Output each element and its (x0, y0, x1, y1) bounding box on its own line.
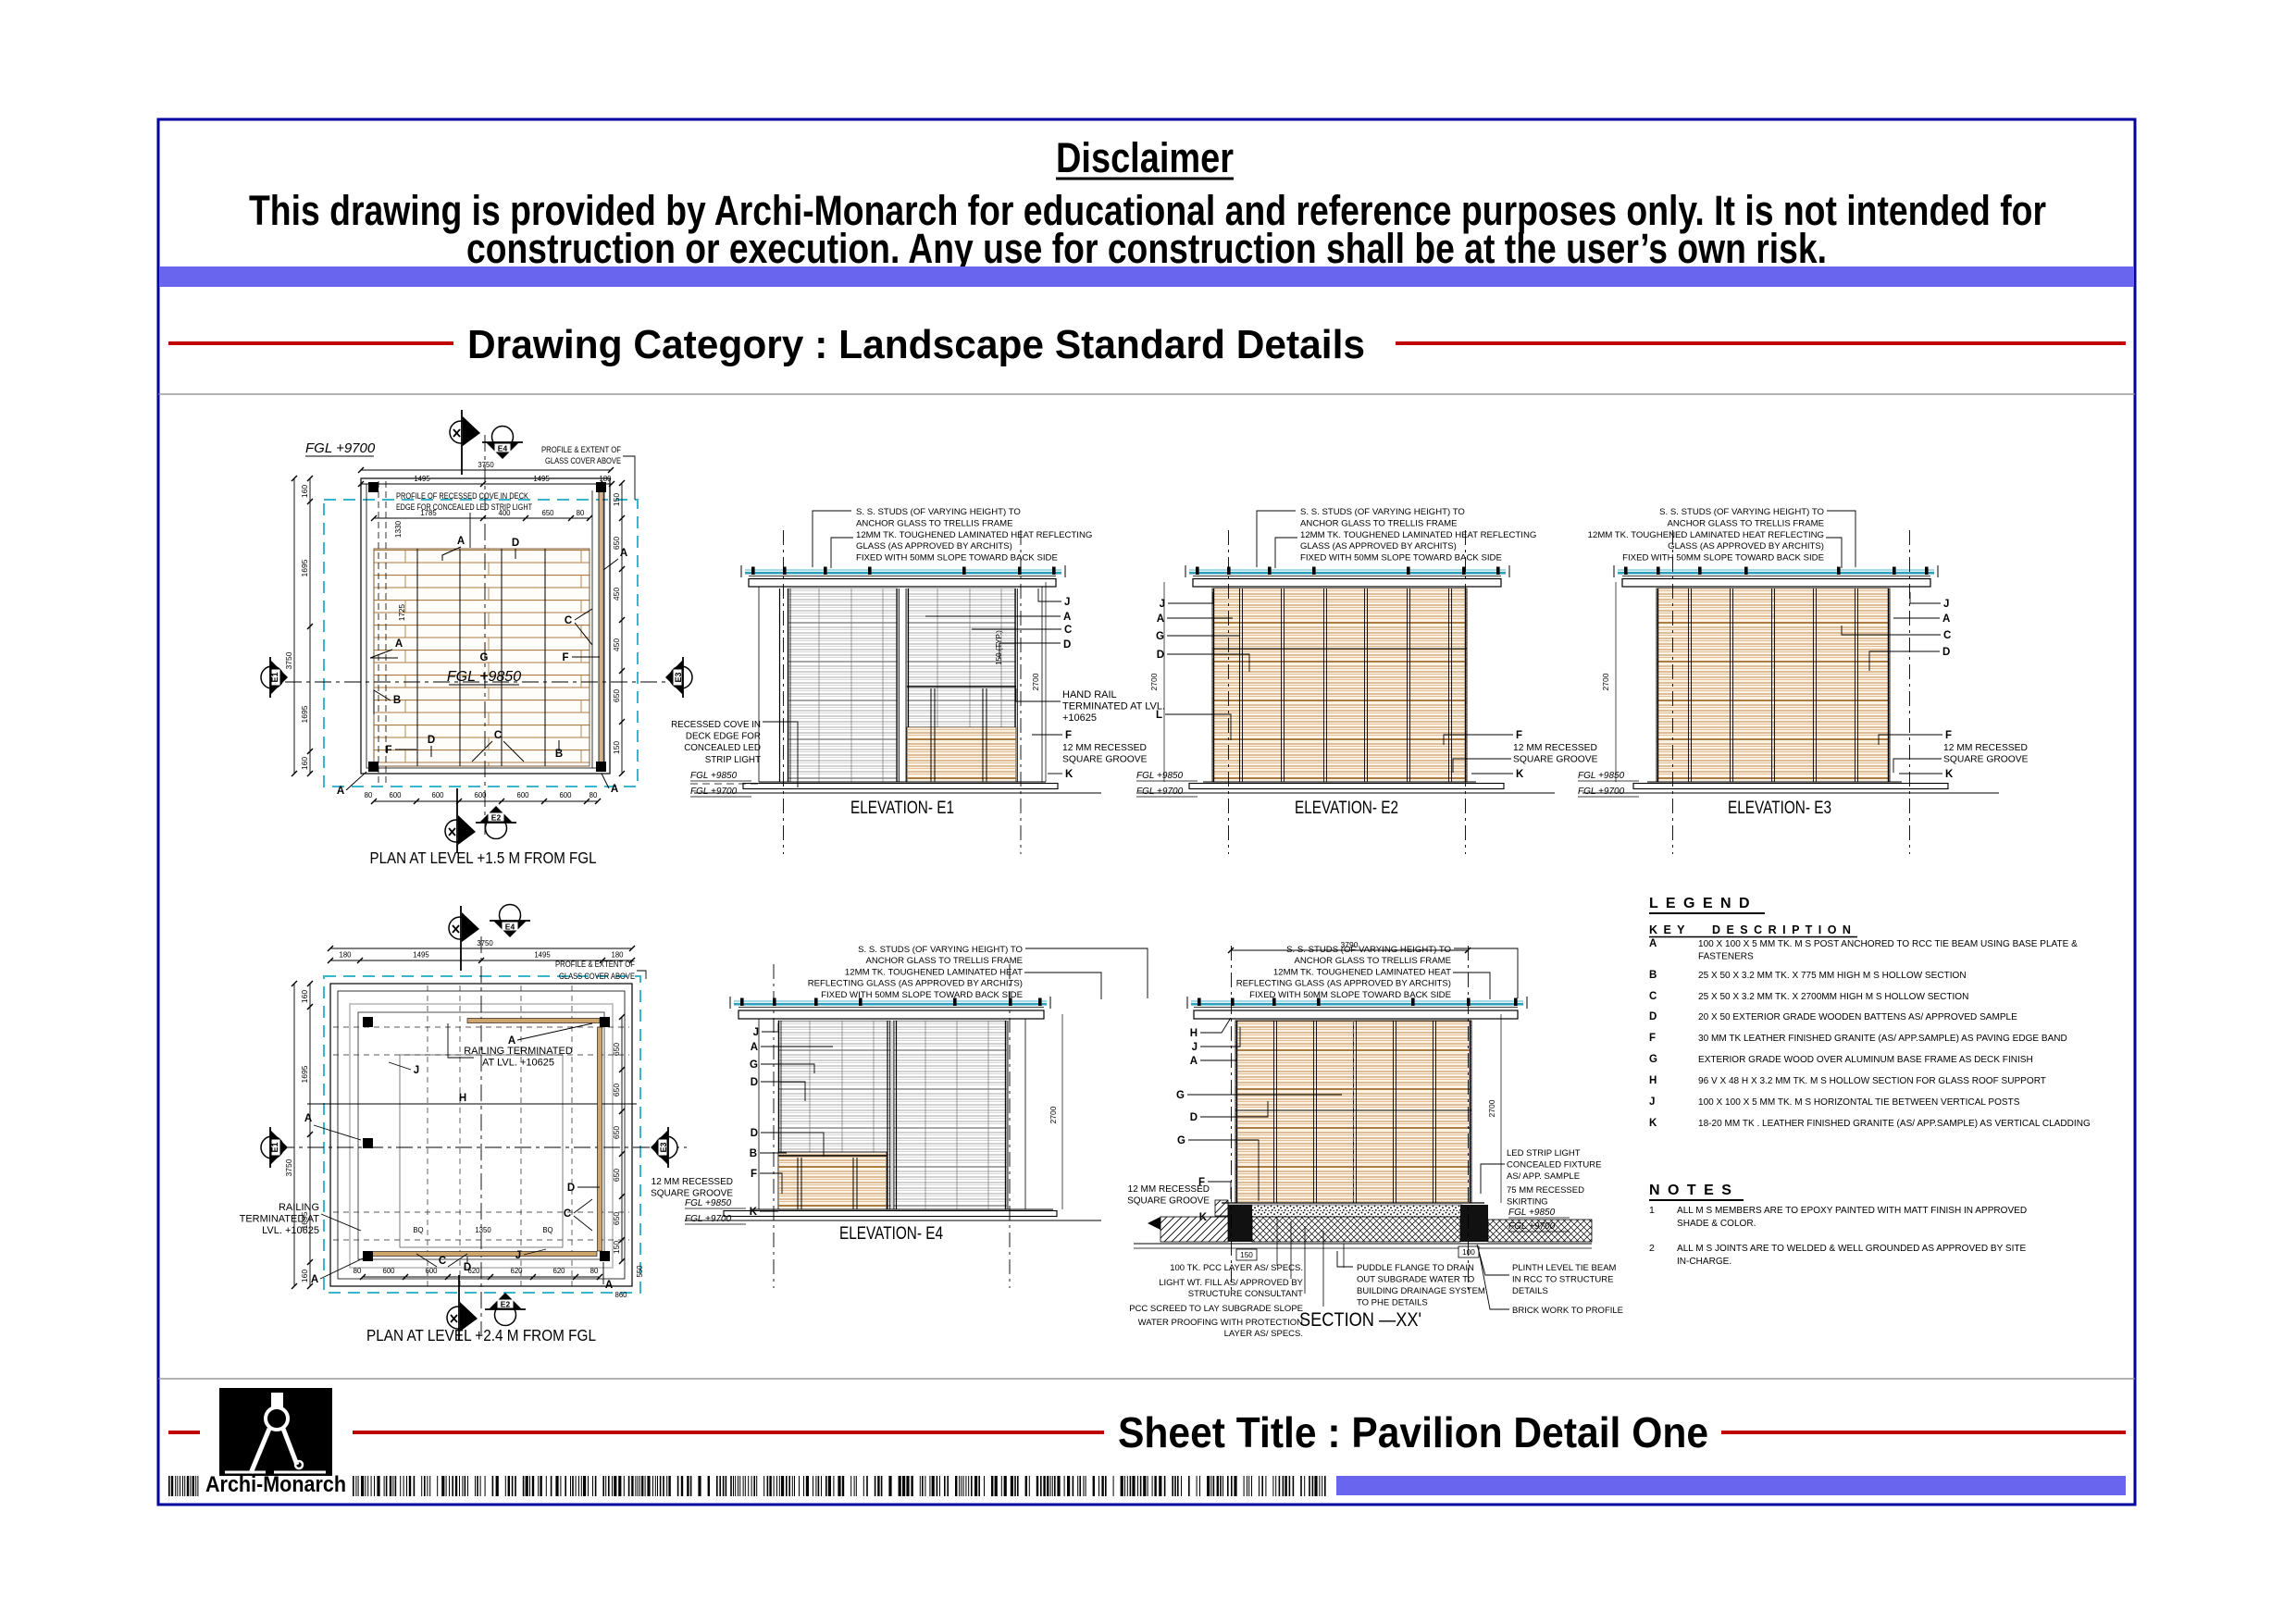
svg-text:ANCHOR GLASS TO TRELLIS FRAME: ANCHOR GLASS TO TRELLIS FRAME (865, 956, 1023, 966)
svg-text:S. S. STUDS (OF VARYING HEIGHT: S. S. STUDS (OF VARYING HEIGHT) TO (858, 945, 1023, 955)
svg-text:STRIP LIGHT: STRIP LIGHT (705, 755, 761, 765)
svg-text:E1: E1 (270, 672, 279, 682)
svg-text:STRUCTURE CONSULTANT: STRUCTURE CONSULTANT (1188, 1289, 1303, 1299)
svg-text:2700: 2700 (1487, 1099, 1496, 1117)
svg-text:25 X 50 X 3.2 MM TK. X 2700MM: 25 X 50 X 3.2 MM TK. X 2700MM HIGH M S H… (1698, 992, 1968, 1002)
svg-text:600: 600 (382, 1267, 395, 1275)
svg-text:D: D (751, 1077, 758, 1088)
svg-text:1695: 1695 (300, 559, 309, 576)
svg-text:D: D (512, 538, 519, 549)
svg-text:J: J (1160, 599, 1165, 610)
svg-text:12MM TK. TOUGHENED LAMINATED H: 12MM TK. TOUGHENED LAMINATED HEAT REFLEC… (1300, 530, 1536, 540)
svg-text:PLAN AT LEVEL +2.4 M FROM FGL: PLAN AT LEVEL +2.4 M FROM FGL (366, 1326, 596, 1344)
svg-text:D: D (1942, 647, 1950, 658)
svg-text:96 V X 48 H X 3.2 MM TK. M S: 96 V X 48 H X 3.2 MM TK. M S HOLLOW SECT… (1698, 1076, 2046, 1086)
svg-text:A: A (304, 1113, 312, 1124)
svg-text:FASTENERS: FASTENERS (1698, 952, 1754, 962)
svg-text:12 MM RECESSED: 12 MM RECESSED (1513, 743, 1597, 753)
svg-text:DETAILS: DETAILS (1512, 1286, 1548, 1296)
svg-text:ELEVATION- E3: ELEVATION- E3 (1728, 799, 1831, 818)
svg-text:J: J (1649, 1096, 1655, 1108)
svg-text:18-20 MM TK . LEATHER FINISHED: 18-20 MM TK . LEATHER FINISHED GRANITE (… (1698, 1119, 2091, 1129)
svg-text:Archi-Monarch: Archi-Monarch (205, 1472, 346, 1497)
svg-text:150: 150 (1240, 1251, 1253, 1259)
svg-text:G: G (750, 1059, 758, 1071)
svg-text:D: D (428, 735, 435, 746)
svg-text:K: K (1945, 769, 1954, 780)
svg-text:620: 620 (552, 1267, 565, 1275)
svg-text:Sheet Title : Pavilion Detail: Sheet Title : Pavilion Detail One (1118, 1408, 1708, 1456)
svg-text:F: F (1198, 1177, 1205, 1188)
svg-text:3750: 3750 (284, 651, 293, 669)
svg-text:160: 160 (300, 757, 309, 770)
svg-text:F: F (1065, 730, 1072, 741)
svg-text:600: 600 (516, 791, 529, 799)
svg-text:K: K (1649, 1118, 1657, 1129)
svg-text:ELEVATION- E1: ELEVATION- E1 (850, 799, 954, 818)
svg-text:A: A (1649, 938, 1657, 949)
svg-text:LVL. +10625: LVL. +10625 (262, 1225, 319, 1236)
svg-text:G: G (1176, 1090, 1185, 1101)
svg-text:PCC SCREED TO LAY SUBGRADE SLO: PCC SCREED TO LAY SUBGRADE SLOPE (1129, 1304, 1303, 1314)
svg-text:E3: E3 (659, 1142, 668, 1152)
svg-text:FIXED WITH 50MM SLOPE TOWARD B: FIXED WITH 50MM SLOPE TOWARD BACK SIDE (1622, 553, 1824, 564)
svg-text:A: A (1190, 1056, 1198, 1067)
svg-text:A: A (1063, 612, 1071, 623)
svg-text:12 MM RECESSED: 12 MM RECESSED (652, 1177, 733, 1187)
svg-text:FGL +9700: FGL +9700 (1578, 787, 1625, 797)
svg-text:2700: 2700 (1049, 1106, 1058, 1123)
svg-text:ANCHOR GLASS TO TRELLIS FRAME: ANCHOR GLASS TO TRELLIS FRAME (1294, 956, 1451, 966)
svg-text:D: D (751, 1128, 758, 1139)
svg-text:L: L (1156, 710, 1162, 721)
svg-text:D: D (1190, 1112, 1198, 1123)
svg-text:H: H (1649, 1075, 1657, 1086)
svg-text:D: D (1649, 1011, 1657, 1022)
svg-text:D E S C R I P T I O N: D E S C R I P T I O N (1712, 923, 1852, 936)
svg-text:A: A (751, 1042, 758, 1053)
svg-text:BQ: BQ (542, 1226, 552, 1234)
svg-text:S. S. STUDS (OF VARYING HEIGHT: S. S. STUDS (OF VARYING HEIGHT) TO (1300, 507, 1465, 517)
svg-text:ELEVATION- E2: ELEVATION- E2 (1295, 799, 1398, 818)
svg-text:DECK EDGE FOR: DECK EDGE FOR (686, 732, 761, 742)
svg-text:860: 860 (614, 1291, 627, 1299)
svg-text:E3: E3 (674, 672, 683, 682)
svg-text:100 X 100 X 5 MM TK. M S HORIZ: 100 X 100 X 5 MM TK. M S HORIZONTAL TIE … (1698, 1097, 2020, 1108)
svg-text:620: 620 (467, 1267, 480, 1275)
svg-text:A: A (605, 1280, 613, 1291)
svg-text:PROFILE & EXTENT OF: PROFILE & EXTENT OF (541, 445, 621, 454)
svg-text:SQUARE GROOVE: SQUARE GROOVE (1513, 755, 1598, 765)
svg-text:FGL +9850: FGL +9850 (1578, 771, 1625, 781)
svg-text:150: 150 (612, 493, 621, 506)
svg-text:12 MM RECESSED: 12 MM RECESSED (1062, 743, 1147, 753)
svg-text:20 X 50 EXTERIOR GRADE WOODEN: 20 X 50 EXTERIOR GRADE WOODEN BATTENS AS… (1698, 1012, 2017, 1022)
svg-text:RAILING: RAILING (279, 1202, 319, 1213)
svg-text:FGL +9700: FGL +9700 (1508, 1221, 1556, 1232)
svg-text:C: C (565, 615, 572, 626)
svg-text:FIXED WITH 50MM SLOPE TOWARD B: FIXED WITH 50MM SLOPE TOWARD BACK SIDE (856, 553, 1058, 564)
svg-text:WATER PROOFING WITH PROTECTION: WATER PROOFING WITH PROTECTION (1138, 1318, 1304, 1328)
svg-text:SQUARE GROOVE: SQUARE GROOVE (1127, 1196, 1210, 1207)
svg-text:EDGE FOR CONCEALED LED STRIP L: EDGE FOR CONCEALED LED STRIP LIGHT (396, 502, 532, 512)
svg-text:F: F (1516, 730, 1522, 741)
svg-text:450: 450 (612, 638, 621, 651)
svg-text:+10625: +10625 (1062, 712, 1097, 724)
svg-text:12 MM RECESSED: 12 MM RECESSED (1128, 1184, 1210, 1195)
svg-text:B: B (750, 1148, 757, 1159)
svg-text:A: A (1157, 613, 1164, 625)
svg-text:BQ: BQ (413, 1226, 423, 1234)
svg-text:GLASS (AS APPROVED BY ARCHITS): GLASS (AS APPROVED BY ARCHITS) (856, 541, 1012, 551)
svg-text:F: F (751, 1169, 757, 1180)
svg-text:30 MM TK LEATHER FINISHED GRAN: 30 MM TK LEATHER FINISHED GRANITE (AS/ A… (1698, 1034, 2067, 1044)
svg-text:SHADE & COLOR.: SHADE & COLOR. (1677, 1219, 1756, 1229)
svg-text:K: K (1199, 1212, 1208, 1223)
svg-text:1695: 1695 (300, 1211, 309, 1229)
svg-text:650: 650 (612, 1126, 621, 1139)
svg-text:ANCHOR GLASS TO TRELLIS FRAME: ANCHOR GLASS TO TRELLIS FRAME (1300, 518, 1458, 528)
svg-text:650: 650 (612, 689, 621, 702)
svg-text:J: J (753, 1027, 759, 1038)
svg-text:OUT SUBGRADE WATER TO: OUT SUBGRADE WATER TO (1357, 1275, 1474, 1285)
svg-text:12 MM RECESSED: 12 MM RECESSED (1943, 743, 2028, 753)
svg-text:construction or execution. Any: construction or execution. Any use for c… (466, 225, 1827, 272)
svg-text:HAND RAIL: HAND RAIL (1062, 689, 1117, 700)
svg-text:2700: 2700 (1031, 673, 1040, 690)
svg-text:FGL +9850: FGL +9850 (690, 771, 738, 781)
svg-text:600: 600 (431, 791, 444, 799)
svg-text:GLASS (AS APPROVED BY ARCHITS): GLASS (AS APPROVED BY ARCHITS) (1668, 541, 1824, 551)
svg-text:SECTION —XX': SECTION —XX' (1299, 1309, 1421, 1331)
svg-text:GLASS (AS APPROVED BY ARCHITS): GLASS (AS APPROVED BY ARCHITS) (1300, 541, 1457, 551)
svg-text:K: K (750, 1207, 758, 1218)
svg-text:1495: 1495 (534, 951, 551, 960)
svg-text:PLAN AT LEVEL +1.5 M FROM FGL: PLAN AT LEVEL +1.5 M FROM FGL (370, 849, 597, 867)
svg-text:D: D (1157, 650, 1164, 661)
svg-text:S. S. STUDS (OF VARYING HEIGHT: S. S. STUDS (OF VARYING HEIGHT) TO (1659, 507, 1824, 517)
svg-text:12MM TK. TOUGHENED LAMINATED H: 12MM TK. TOUGHENED LAMINATED HEAT (1273, 967, 1451, 977)
svg-text:BUILDING DRAINAGE SYSTEM: BUILDING DRAINAGE SYSTEM (1357, 1286, 1485, 1296)
svg-text:IN RCC TO STRUCTURE: IN RCC TO STRUCTURE (1512, 1275, 1613, 1285)
svg-text:3750: 3750 (284, 1158, 293, 1176)
svg-text:TERMINATED AT LVL.: TERMINATED AT LVL. (1062, 701, 1165, 712)
svg-text:160: 160 (300, 990, 309, 1003)
svg-text:C: C (1649, 991, 1657, 1002)
svg-text:160: 160 (300, 1270, 309, 1282)
svg-text:FGL +9700: FGL +9700 (690, 787, 738, 797)
svg-text:SKIRTING: SKIRTING (1507, 1197, 1548, 1208)
svg-text:25 X 50 X 3.2 MM TK. X 775 MM: 25 X 50 X 3.2 MM TK. X 775 MM HIGH M S H… (1698, 971, 1967, 981)
svg-text:180: 180 (611, 951, 624, 960)
svg-text:600: 600 (559, 791, 572, 799)
svg-text:80: 80 (590, 791, 598, 799)
svg-text:RECESSED COVE IN: RECESSED COVE IN (671, 720, 761, 730)
svg-text:A: A (337, 786, 344, 797)
svg-text:650: 650 (541, 509, 554, 517)
svg-text:H: H (1190, 1028, 1198, 1039)
svg-text:A: A (1942, 613, 1950, 625)
svg-text:150: 150 (612, 741, 621, 754)
svg-text:LAYER AS/ SPECS.: LAYER AS/ SPECS. (1224, 1329, 1303, 1339)
svg-text:FGL +9850: FGL +9850 (1136, 771, 1184, 781)
svg-text:FGL +9850: FGL +9850 (685, 1198, 732, 1208)
svg-text:E2: E2 (491, 813, 502, 823)
svg-text:100: 100 (1462, 1248, 1475, 1257)
svg-text:GLASS COVER ABOVE: GLASS COVER ABOVE (559, 972, 635, 981)
svg-text:FGL +9700: FGL +9700 (685, 1214, 732, 1224)
svg-text:F: F (1945, 730, 1952, 741)
svg-text:J: J (1064, 597, 1070, 608)
svg-text:FGL +9850: FGL +9850 (447, 669, 521, 685)
svg-text:12MM TK. TOUGHENED LAMINATED H: 12MM TK. TOUGHENED LAMINATED HEAT (845, 967, 1023, 977)
svg-text:550: 550 (636, 1265, 644, 1278)
svg-text:EXTERIOR GRADE WOOD OVER ALUMI: EXTERIOR GRADE WOOD OVER ALUMINUM BASE F… (1698, 1055, 2033, 1065)
svg-text:C: C (439, 1256, 446, 1267)
svg-text:620: 620 (510, 1267, 523, 1275)
svg-text:FIXED WITH 50MM SLOPE TOWARD B: FIXED WITH 50MM SLOPE TOWARD BACK SIDE (821, 990, 1023, 1000)
svg-text:180: 180 (339, 951, 352, 960)
svg-text:F: F (1649, 1033, 1656, 1044)
svg-text:E2: E2 (501, 1300, 511, 1309)
svg-text:BRICK WORK TO PROFILE: BRICK WORK TO PROFILE (1512, 1306, 1623, 1316)
svg-text:K E Y: K E Y (1649, 923, 1686, 936)
svg-text:1695: 1695 (300, 705, 309, 723)
svg-text:600: 600 (425, 1267, 438, 1275)
svg-text:A: A (457, 536, 465, 547)
svg-text:1495: 1495 (413, 951, 429, 960)
svg-text:ANCHOR GLASS TO TRELLIS FRAME: ANCHOR GLASS TO TRELLIS FRAME (1667, 518, 1824, 528)
svg-text:RAILING TERMINATED: RAILING TERMINATED (464, 1046, 573, 1057)
svg-text:650: 650 (612, 1084, 621, 1096)
svg-text:K: K (1065, 769, 1074, 780)
svg-text:PUDDLE FLANGE TO DRAIN: PUDDLE FLANGE TO DRAIN (1357, 1263, 1474, 1273)
svg-text:650: 650 (612, 537, 621, 550)
svg-text:J: J (1192, 1042, 1198, 1053)
svg-text:3750: 3750 (478, 461, 494, 469)
svg-text:ALL M S JOINTS ARE TO WELDED &: ALL M S JOINTS ARE TO WELDED & WELL GROU… (1677, 1244, 2027, 1254)
svg-text:600: 600 (389, 791, 402, 799)
svg-text:A: A (620, 548, 627, 559)
svg-text:1330: 1330 (394, 520, 403, 538)
svg-text:E1: E1 (270, 1142, 279, 1152)
svg-text:CONCEALED FIXTURE: CONCEALED FIXTURE (1507, 1160, 1601, 1171)
svg-text:REFLECTING GLASS (AS APPROVED: REFLECTING GLASS (AS APPROVED BY ARCHITS… (1236, 979, 1451, 989)
svg-text:PROFILE & EXTENT OF: PROFILE & EXTENT OF (555, 960, 635, 969)
svg-text:B: B (1649, 970, 1657, 981)
svg-text:A: A (611, 784, 618, 795)
svg-text:12MM TK. TOUGHENED LAMINATED H: 12MM TK. TOUGHENED LAMINATED HEAT REFLEC… (1588, 530, 1824, 540)
svg-text:FGL +9700: FGL +9700 (1136, 787, 1184, 797)
svg-text:SQUARE GROOVE: SQUARE GROOVE (651, 1189, 733, 1199)
svg-text:100 TK. PCC LAYER AS/ SPECS.: 100 TK. PCC LAYER AS/ SPECS. (1170, 1263, 1303, 1273)
svg-text:450: 450 (612, 588, 621, 601)
svg-text:3750: 3750 (477, 939, 493, 948)
svg-text:CONCEALED LED: CONCEALED LED (684, 743, 761, 753)
svg-text:1: 1 (1649, 1205, 1655, 1216)
svg-text:150 (TYP.): 150 (TYP.) (995, 630, 1003, 665)
svg-text:ALL M S MEMBERS ARE TO EPOXY P: ALL M S MEMBERS ARE TO EPOXY PAINTED WIT… (1677, 1206, 2027, 1216)
svg-text:80: 80 (590, 1267, 599, 1275)
svg-text:F: F (562, 652, 568, 663)
svg-text:SQUARE GROOVE: SQUARE GROOVE (1943, 755, 2029, 765)
svg-text:100 X 100 X 5 MM TK. M S POST: 100 X 100 X 5 MM TK. M S POST ANCHORED T… (1698, 939, 2078, 949)
svg-text:S. S. STUDS (OF VARYING HEIGHT: S. S. STUDS (OF VARYING HEIGHT) TO (856, 507, 1021, 517)
svg-text:REFLECTING GLASS (AS APPROVED: REFLECTING GLASS (AS APPROVED BY ARCHITS… (808, 979, 1023, 989)
svg-text:2700: 2700 (1601, 673, 1610, 690)
svg-text:FIXED WITH 50MM SLOPE TOWARD B: FIXED WITH 50MM SLOPE TOWARD BACK SIDE (1300, 553, 1502, 564)
svg-text:2700: 2700 (1149, 673, 1159, 690)
svg-text:150: 150 (612, 1241, 621, 1254)
svg-text:160: 160 (300, 485, 309, 498)
svg-text:G: G (1156, 631, 1164, 642)
svg-text:K: K (1516, 769, 1524, 780)
svg-text:650: 650 (612, 1043, 621, 1056)
svg-text:ELEVATION- E4: ELEVATION- E4 (839, 1224, 943, 1244)
svg-text:ANCHOR GLASS TO TRELLIS FRAME: ANCHOR GLASS TO TRELLIS FRAME (856, 518, 1013, 528)
svg-text:PROFILE OF RECESSED COVE IN D: PROFILE OF RECESSED COVE IN DECK (396, 491, 528, 501)
svg-text:1695: 1695 (300, 1065, 309, 1083)
svg-text:FIXED WITH 50MM SLOPE TOWARD B: FIXED WITH 50MM SLOPE TOWARD BACK SIDE (1249, 990, 1451, 1000)
svg-text:H: H (459, 1093, 466, 1104)
svg-text:600: 600 (474, 791, 487, 799)
svg-text:650: 650 (612, 1169, 621, 1182)
svg-text:1350: 1350 (475, 1226, 491, 1234)
svg-text:C: C (494, 730, 502, 741)
svg-text:C: C (564, 1208, 571, 1220)
svg-text:80: 80 (577, 509, 585, 517)
svg-text:80: 80 (354, 1267, 362, 1275)
svg-text:L E G E N D: L E G E N D (1649, 896, 1752, 911)
svg-text:E4: E4 (505, 923, 515, 932)
svg-text:2: 2 (1649, 1243, 1655, 1254)
svg-text:12MM TK. TOUGHENED LAMINATED H: 12MM TK. TOUGHENED LAMINATED HEAT REFLEC… (856, 530, 1092, 540)
svg-text:C: C (1943, 630, 1951, 641)
svg-text:80: 80 (365, 791, 373, 799)
svg-text:FGL +9850: FGL +9850 (1508, 1208, 1556, 1218)
svg-text:B: B (393, 695, 401, 706)
svg-text:TO PHE DETAILS: TO PHE DETAILS (1357, 1298, 1428, 1308)
svg-text:LED STRIP LIGHT: LED STRIP LIGHT (1507, 1148, 1581, 1158)
svg-text:650: 650 (612, 1212, 621, 1225)
svg-text:N O T E S: N O T E S (1649, 1183, 1733, 1198)
svg-text:C: C (1064, 625, 1072, 636)
svg-text:D: D (1063, 639, 1071, 650)
svg-text:Disclaimer: Disclaimer (1056, 134, 1234, 181)
svg-text:FGL +9700: FGL +9700 (305, 440, 376, 456)
svg-text:F: F (385, 745, 391, 756)
svg-text:PLINTH LEVEL TIE BEAM: PLINTH LEVEL TIE BEAM (1512, 1263, 1617, 1273)
svg-text:IN-CHARGE.: IN-CHARGE. (1677, 1257, 1731, 1267)
svg-text:G: G (1649, 1054, 1657, 1065)
svg-text:S. S. STUDS (OF VARYING HEIGHT: S. S. STUDS (OF VARYING HEIGHT) TO (1286, 945, 1451, 955)
svg-text:A: A (395, 638, 403, 650)
svg-text:GLASS COVER ABOVE: GLASS COVER ABOVE (545, 456, 621, 465)
svg-text:G: G (1177, 1135, 1185, 1146)
svg-text:J: J (1943, 599, 1949, 610)
svg-text:AT LVL. +10625: AT LVL. +10625 (482, 1058, 554, 1069)
svg-text:J: J (414, 1065, 419, 1076)
svg-text:Drawing Category : Landscape S: Drawing Category : Landscape Standard De… (467, 322, 1365, 367)
svg-text:75 MM RECESSED: 75 MM RECESSED (1507, 1185, 1584, 1196)
svg-text:D: D (567, 1183, 575, 1194)
svg-text:E4: E4 (498, 444, 508, 453)
svg-text:G: G (480, 652, 489, 663)
svg-text:J: J (515, 1250, 521, 1261)
svg-text:AS/ APP. SAMPLE: AS/ APP. SAMPLE (1507, 1171, 1580, 1182)
svg-text:SQUARE GROOVE: SQUARE GROOVE (1062, 755, 1148, 765)
svg-text:1725: 1725 (398, 603, 406, 621)
